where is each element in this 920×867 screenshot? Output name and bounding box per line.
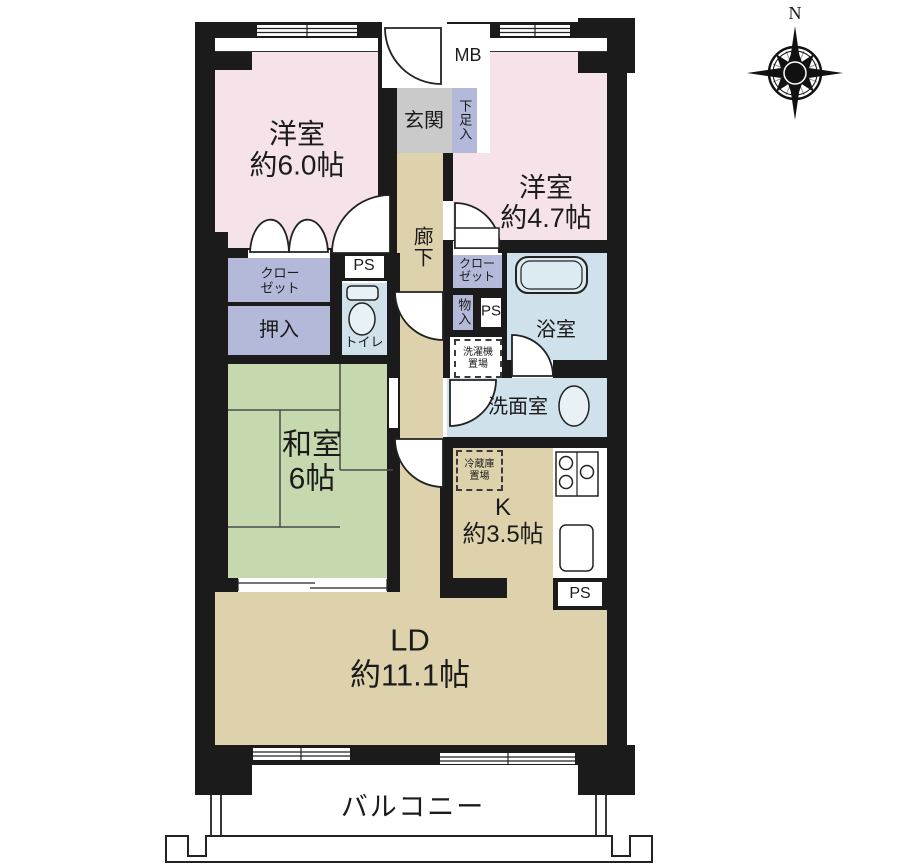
japanese-sliding-doors bbox=[238, 579, 387, 591]
western47-door-opening bbox=[453, 241, 498, 253]
label-hallway: 廊下 bbox=[410, 226, 432, 268]
window-sill-western47 bbox=[490, 38, 607, 52]
label-closet-left: クロー ゼット bbox=[260, 266, 299, 295]
washer-place-label: 洗濯機置場 bbox=[463, 347, 493, 370]
closet-right-line2: ゼット bbox=[459, 271, 495, 284]
closet-left-line1: クロー bbox=[260, 266, 299, 281]
label-japanese: 和室 6帖 bbox=[282, 428, 342, 495]
wall-hall-east-mid bbox=[443, 253, 453, 337]
window-top-western47 bbox=[500, 25, 570, 36]
western47-size: 約4.7帖 bbox=[500, 203, 592, 233]
wall-left bbox=[195, 38, 215, 745]
label-washroom: 洗面室 bbox=[488, 396, 548, 418]
window-top-western6 bbox=[257, 25, 357, 36]
window-bottom-left bbox=[253, 748, 350, 760]
wall-kitchen-bottom bbox=[440, 578, 507, 598]
living-size: 約11.1帖 bbox=[350, 658, 470, 693]
wall-left-thick bbox=[215, 232, 228, 582]
label-toilet: トイレ bbox=[344, 336, 383, 351]
washer-place-box: 洗濯機置場 bbox=[454, 339, 502, 378]
western6-name: 洋室 bbox=[250, 119, 345, 150]
pillar-bottom-left bbox=[195, 745, 252, 795]
kitchen-ld-opening bbox=[507, 583, 553, 592]
fridge-place-box: 冷蔵庫置場 bbox=[456, 450, 503, 491]
label-entrance: 玄関 bbox=[404, 110, 444, 132]
label-compass-north: N bbox=[789, 3, 802, 23]
closet-left-line2: ゼット bbox=[260, 281, 299, 296]
bathroom-area bbox=[507, 252, 607, 360]
wall-under-oshiire bbox=[215, 355, 397, 364]
label-western6: 洋室 約6.0帖 bbox=[250, 119, 345, 182]
wall-closet-right-bottom bbox=[453, 288, 507, 295]
pillar-bottom-right bbox=[578, 745, 635, 795]
window-bottom-right bbox=[440, 753, 575, 764]
label-storage: 物入 bbox=[456, 298, 471, 326]
compass-icon bbox=[747, 26, 843, 120]
label-oshiire: 押入 bbox=[259, 319, 299, 341]
wall-under-storage-row bbox=[443, 330, 507, 337]
western6-size: 約6.0帖 bbox=[250, 150, 345, 181]
wall-closet-left-east bbox=[330, 253, 342, 362]
label-shoe-box: 下足入 bbox=[457, 99, 472, 141]
window-sill-western6 bbox=[215, 38, 378, 52]
bath-door-opening bbox=[512, 360, 553, 378]
fusuma-hall-japanese bbox=[389, 378, 398, 428]
label-ps-bottom: PS bbox=[569, 585, 590, 603]
label-bathroom: 浴室 bbox=[536, 319, 576, 341]
label-living: LD 約11.1帖 bbox=[350, 623, 470, 692]
balcony-railing bbox=[166, 836, 652, 862]
wall-japanese-bottom-right bbox=[387, 578, 400, 592]
floor-plan: 洗濯機置場 冷蔵庫置場 bbox=[0, 0, 920, 867]
label-kitchen: K 約3.5帖 bbox=[462, 495, 543, 549]
entrance-alcove bbox=[382, 22, 447, 88]
label-western47: 洋室 約4.7帖 bbox=[500, 173, 592, 233]
wall-right bbox=[607, 38, 627, 745]
wall-kitchen-west bbox=[440, 448, 453, 578]
label-closet-right: クロー ゼット bbox=[459, 258, 495, 285]
wall-japanese-bottom-left bbox=[215, 578, 238, 592]
living-name: LD bbox=[350, 623, 470, 658]
closet-right-line1: クロー bbox=[459, 258, 495, 271]
western47-name: 洋室 bbox=[500, 173, 592, 203]
kitchen-name: K bbox=[462, 495, 543, 522]
wall-under-washroom bbox=[443, 437, 607, 448]
japanese-name: 和室 bbox=[282, 428, 342, 462]
kitchen-counter bbox=[553, 448, 607, 578]
japanese-size: 6帖 bbox=[282, 462, 342, 496]
wall-hall-east-top bbox=[443, 153, 453, 201]
hallway-area bbox=[397, 153, 443, 592]
kitchen-size: 約3.5帖 bbox=[462, 522, 543, 549]
wall-bath-bottom-right bbox=[553, 360, 607, 378]
label-ps-middle: PS bbox=[481, 304, 501, 321]
label-balcony: バルコニー bbox=[341, 792, 485, 822]
wall-washer-west bbox=[443, 337, 450, 378]
label-ps-left: PS bbox=[353, 257, 374, 275]
fridge-place-label: 冷蔵庫置場 bbox=[465, 459, 495, 482]
label-meter-box: MB bbox=[455, 45, 482, 65]
wall-closet-oshiire bbox=[228, 302, 330, 306]
